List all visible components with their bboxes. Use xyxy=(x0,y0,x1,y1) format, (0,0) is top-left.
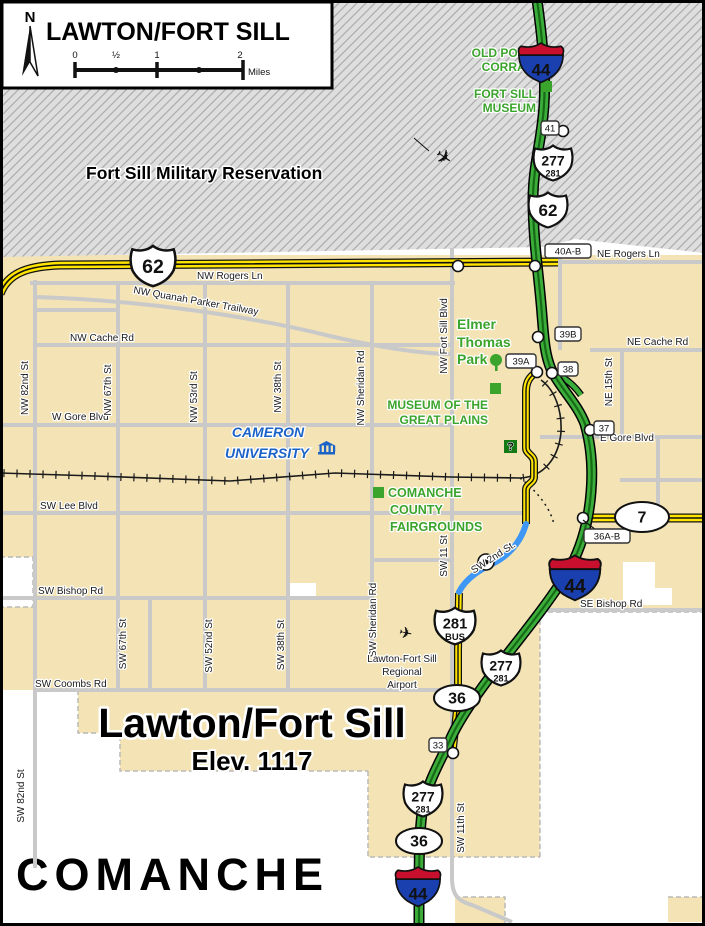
lawton-fort-sill-map: COMANCHE?✈✈NW Rogers LnNE Rogers LnNW Qu… xyxy=(0,0,705,926)
scale-bar-minor-tick xyxy=(196,67,202,73)
route-number-secondary: 281 xyxy=(493,674,508,684)
route-number: 62 xyxy=(142,256,164,278)
street-label: NW Rogers Ln xyxy=(197,271,263,282)
street-label-vertical: SW 38th St xyxy=(276,619,287,670)
rect xyxy=(320,446,322,453)
poi-square-marker xyxy=(541,81,552,92)
railroad-tick xyxy=(238,476,239,484)
tree-icon xyxy=(490,354,502,366)
cameron-university-label: CAMERON xyxy=(232,424,305,440)
interchange-node xyxy=(448,748,459,759)
route-number-secondary: 281 xyxy=(545,169,560,179)
route-number: 277 xyxy=(541,153,565,169)
route-number: 44 xyxy=(564,577,586,598)
elmer-thomas-park-label: Park xyxy=(457,351,488,367)
street-label-vertical: NW 82nd St xyxy=(20,361,31,415)
airport-label: Lawton-Fort Sill xyxy=(367,654,436,665)
city-name-label: Lawton/Fort Sill xyxy=(98,700,405,746)
state-highway-marker: 7 xyxy=(615,502,669,532)
county-name-label: COMANCHE xyxy=(16,849,329,900)
city-area xyxy=(668,897,705,922)
street-label: SW Lee Blvd xyxy=(40,501,98,512)
street-label-vertical: SW 67th St xyxy=(118,618,129,669)
railroad-tick xyxy=(276,474,277,482)
exit-number: 38 xyxy=(563,365,574,376)
route-number: 36 xyxy=(410,834,428,851)
street-label-vertical: NW Sheridan Rd xyxy=(356,350,367,425)
museum-great-plains-label: GREAT PLAINS xyxy=(400,413,488,427)
rect xyxy=(329,446,331,453)
north-label: N xyxy=(25,9,36,26)
interchange-node xyxy=(453,261,464,272)
reservation-label: Fort Sill Military Reservation xyxy=(86,163,322,183)
elmer-thomas-park-label: Elmer xyxy=(457,316,496,332)
railroad-tick xyxy=(302,472,303,480)
street-label-vertical: SW 11 St xyxy=(439,535,450,577)
railroad-tick xyxy=(264,474,265,482)
scale-tick-label: 2 xyxy=(237,50,242,61)
fairgrounds-label: COUNTY xyxy=(390,503,443,517)
interchange-node xyxy=(533,332,544,343)
street-label: W Gore Blvd xyxy=(52,412,109,423)
interchange-node xyxy=(547,368,558,379)
poi-square-marker xyxy=(490,383,501,394)
railroad-tick xyxy=(328,470,329,478)
scale-tick-label: ½ xyxy=(112,50,120,61)
title-box: LAWTON/FORT SILLN0½12Miles xyxy=(2,2,332,88)
museum-great-plains-label: MUSEUM OF THE xyxy=(387,398,488,412)
exit-number: 33 xyxy=(433,741,444,752)
rect xyxy=(318,452,335,455)
airport-label: Airport xyxy=(387,680,417,691)
exit-number: 37 xyxy=(599,424,610,435)
exit-number: 39A xyxy=(513,357,531,368)
route-number: 7 xyxy=(638,510,647,527)
scale-bar-minor-tick xyxy=(113,67,119,73)
state-highway-marker: 36 xyxy=(434,685,480,711)
street-label-vertical: NW Fort Sill Blvd xyxy=(439,298,450,374)
street-label: NE Cache Rd xyxy=(627,337,688,348)
exit-number: 41 xyxy=(545,124,556,135)
rect xyxy=(324,446,326,453)
street-label: SE Bishop Rd xyxy=(580,599,642,610)
street-label: NE Rogers Ln xyxy=(597,249,660,260)
street-label-vertical: NW 53rd St xyxy=(189,371,200,423)
elevation-label: Elev. 1117 xyxy=(192,746,313,776)
interchange-node xyxy=(578,513,589,524)
state-highway-marker: 36 xyxy=(396,828,442,854)
street-label-vertical: SW 11th St xyxy=(456,803,467,853)
cameron-university-label: UNIVERSITY xyxy=(225,445,311,461)
info-question-glyph: ? xyxy=(507,441,514,453)
elmer-thomas-park-label: Thomas xyxy=(457,334,511,350)
airport-label: Regional xyxy=(382,667,421,678)
street-label-vertical: NW 67th St xyxy=(103,364,114,415)
street-label-vertical: SW 52nd St xyxy=(204,619,215,673)
railroad-tick xyxy=(289,473,290,481)
street-label-vertical: SW Sheridan Rd xyxy=(368,583,379,657)
route-number: 44 xyxy=(409,885,428,904)
fort-sill-museum-label: FORT SILL xyxy=(474,87,536,101)
fairgrounds-label: COMANCHE xyxy=(388,486,462,500)
interchange-node xyxy=(530,261,541,272)
railroad-tick xyxy=(251,475,252,483)
street-label-vertical: NW 38th St xyxy=(273,361,284,412)
railroad-tick xyxy=(315,471,316,479)
exit-number: 40A-B xyxy=(555,247,581,258)
route-number: 281 xyxy=(443,617,468,633)
street-label-vertical: SW 82nd St xyxy=(16,769,27,823)
exit-number: 39B xyxy=(560,330,577,341)
fort-sill-museum-label: MUSEUM xyxy=(483,101,536,115)
route-number: 36 xyxy=(448,691,466,708)
route-number: 277 xyxy=(489,658,513,674)
route-number: 44 xyxy=(532,61,551,80)
street-label: SW Coombs Rd xyxy=(35,679,107,690)
route-number: 277 xyxy=(411,789,435,805)
route-number-secondary: 281 xyxy=(415,805,430,815)
exit-number: 36A-B xyxy=(594,532,620,543)
scale-tick-label: 0 xyxy=(72,50,77,61)
poi-square-marker xyxy=(373,487,384,498)
route-number-secondary: BUS xyxy=(445,632,465,643)
map-stage: COMANCHE?✈✈NW Rogers LnNE Rogers LnNW Qu… xyxy=(0,0,705,926)
street-label: NW Cache Rd xyxy=(70,333,134,344)
scale-unit-label: Miles xyxy=(248,67,270,78)
scale-tick-label: 1 xyxy=(154,50,159,61)
fairgrounds-label: FAIRGROUNDS xyxy=(390,520,482,534)
route-number: 62 xyxy=(539,201,558,220)
rect xyxy=(333,446,335,453)
street-label: SW Bishop Rd xyxy=(38,586,103,597)
street-label-vertical: NE 15th St xyxy=(604,358,615,407)
map-title: LAWTON/FORT SILL xyxy=(46,18,290,46)
